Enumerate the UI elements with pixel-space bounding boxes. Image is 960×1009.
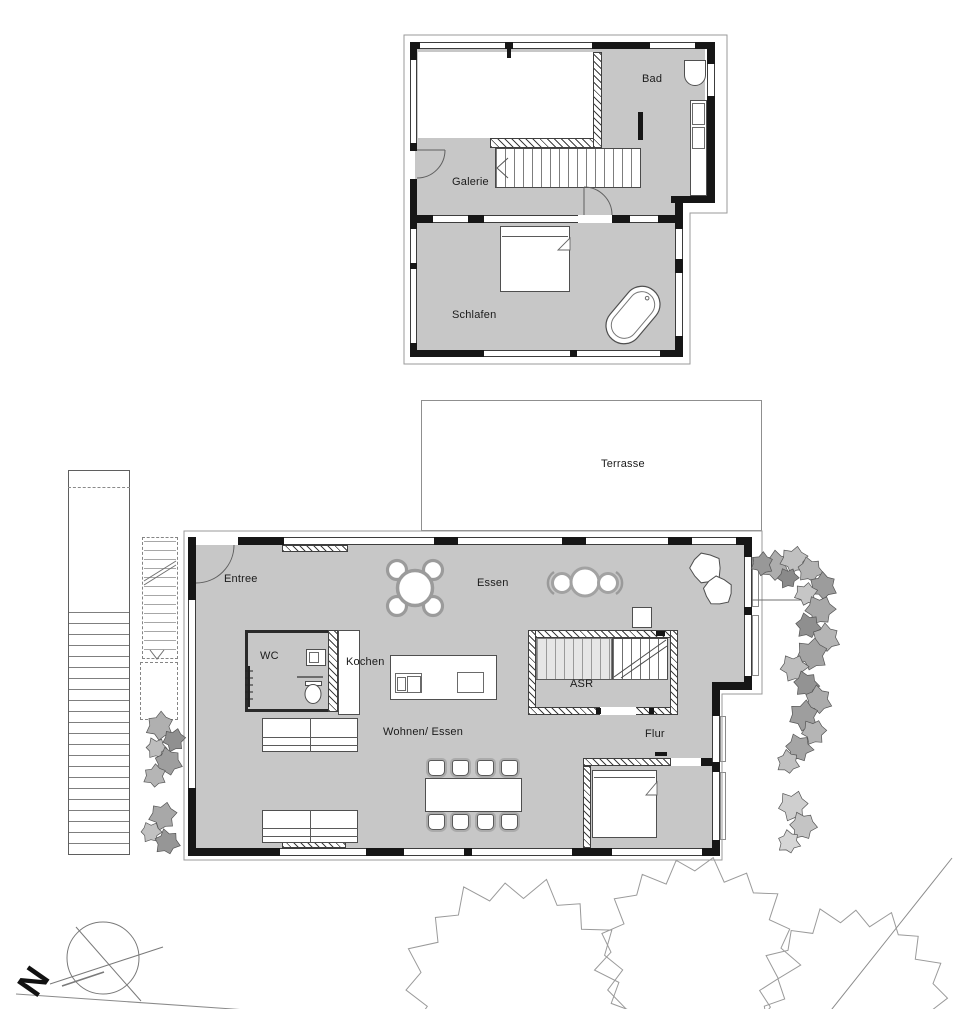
window xyxy=(484,215,578,223)
shrub xyxy=(761,550,789,580)
hatched-wall xyxy=(593,52,602,148)
shrub xyxy=(806,685,832,714)
wall-segment xyxy=(468,215,484,223)
wall-segment xyxy=(712,690,720,716)
wall-segment xyxy=(656,631,665,636)
wall-segment xyxy=(410,143,417,151)
room-label-flur: Flur xyxy=(645,728,665,740)
hatched-wall xyxy=(583,758,671,766)
window xyxy=(675,273,683,336)
wc-cistern xyxy=(305,681,322,686)
shrub xyxy=(795,583,818,606)
wall-segment xyxy=(658,215,675,223)
wall-segment xyxy=(701,758,712,766)
wall-segment xyxy=(562,537,586,545)
shrub xyxy=(790,700,818,731)
window xyxy=(404,848,464,856)
shrub xyxy=(786,734,814,761)
pillar xyxy=(632,607,652,628)
hatched-wall xyxy=(328,630,338,712)
wall-segment xyxy=(505,42,513,49)
partition-wall xyxy=(245,630,248,712)
terrasse-area xyxy=(421,400,762,531)
tree-canopy xyxy=(595,858,801,1009)
bed-ground xyxy=(592,770,657,838)
wall-segment xyxy=(612,215,630,223)
plan-element xyxy=(692,127,705,149)
window xyxy=(433,215,468,223)
shrub xyxy=(814,623,840,652)
wall-segment xyxy=(410,350,484,357)
wall-segment xyxy=(596,708,601,714)
shrub xyxy=(780,546,808,573)
window xyxy=(188,600,196,788)
window xyxy=(712,772,720,840)
tree-canopies xyxy=(406,858,948,1009)
detail-line xyxy=(310,810,311,843)
wall-segment xyxy=(675,259,683,273)
shrub xyxy=(810,572,836,600)
detail-line xyxy=(502,236,568,237)
window xyxy=(410,229,417,263)
window xyxy=(458,537,562,545)
window-sill xyxy=(752,557,759,607)
plan-element xyxy=(397,677,406,691)
room-label-entree: Entree xyxy=(224,573,258,585)
wall-segment xyxy=(188,848,280,856)
property-line xyxy=(828,858,952,1009)
north-compass: N xyxy=(9,922,247,1009)
detail-line xyxy=(594,777,655,778)
wall-segment xyxy=(188,537,196,600)
wall-segment xyxy=(464,848,472,856)
north-label: N xyxy=(9,959,57,1004)
partition-wall xyxy=(245,630,340,633)
room-label-bad: Bad xyxy=(642,73,662,85)
wall-segment xyxy=(744,537,752,557)
shrub xyxy=(779,791,809,821)
detail-line xyxy=(310,718,311,752)
window xyxy=(744,557,752,607)
wall-segment xyxy=(570,350,577,357)
room-label-wc: WC xyxy=(260,650,279,662)
window xyxy=(513,42,592,49)
shrub xyxy=(155,747,182,775)
shrub xyxy=(163,729,186,752)
plan-element xyxy=(69,612,129,854)
window xyxy=(707,64,715,96)
window xyxy=(630,215,658,223)
room-label-galerie: Galerie xyxy=(452,176,489,188)
room-label-asr: ASR xyxy=(570,678,593,690)
chair xyxy=(477,760,494,776)
stair-flight-under xyxy=(536,638,612,680)
wall-segment xyxy=(712,762,720,772)
hatched-wall xyxy=(490,138,602,148)
window xyxy=(410,269,417,343)
stair-upper xyxy=(495,148,641,188)
shrub xyxy=(802,721,827,745)
plan-element xyxy=(407,676,421,693)
wall-segment xyxy=(675,203,683,229)
window xyxy=(650,42,695,49)
wall-segment xyxy=(188,788,196,856)
window xyxy=(744,615,752,676)
wall-segment xyxy=(572,848,612,856)
floor-plan-drawing: Bad Galerie Schlafen Terrasse Entree Ess… xyxy=(0,0,960,1009)
wall-segment xyxy=(668,537,692,545)
wall-segment xyxy=(712,682,752,690)
shrub xyxy=(149,802,177,830)
tree-canopy xyxy=(406,879,628,1009)
window xyxy=(420,42,505,49)
hatched-wall xyxy=(282,545,348,552)
window xyxy=(472,848,572,856)
bedroom-door-opening xyxy=(671,758,701,766)
shrub xyxy=(790,812,818,838)
chair xyxy=(452,814,469,830)
dining-table xyxy=(425,778,522,812)
room-label-essen: Essen xyxy=(477,577,509,589)
shrub xyxy=(798,557,823,582)
wall-segment xyxy=(434,537,458,545)
shrub xyxy=(780,656,809,681)
wall-segment xyxy=(410,42,417,60)
window xyxy=(284,537,434,545)
wall-segment xyxy=(649,708,654,714)
chair xyxy=(477,814,494,830)
window xyxy=(712,716,720,762)
partition-wall xyxy=(245,709,338,712)
door-opening xyxy=(578,215,612,223)
chair xyxy=(501,760,518,776)
wall-segment xyxy=(707,42,715,64)
plan-element xyxy=(692,103,705,125)
window xyxy=(484,350,570,357)
window-sill xyxy=(720,716,726,762)
chair xyxy=(501,814,518,830)
wall-segment xyxy=(366,848,404,856)
wall-segment xyxy=(744,607,752,615)
wall-segment xyxy=(655,752,667,756)
window xyxy=(410,60,417,143)
shrub xyxy=(777,569,799,588)
wc-toilet-upper xyxy=(684,60,706,86)
wall-segment xyxy=(592,42,650,49)
window-sill xyxy=(720,772,726,840)
room-label-terrasse: Terrasse xyxy=(601,458,645,470)
window xyxy=(612,848,702,856)
stair-landing xyxy=(140,662,178,720)
window xyxy=(577,350,660,357)
shrub xyxy=(796,613,822,638)
window xyxy=(280,848,366,856)
wall-segment xyxy=(660,350,683,357)
hatched-wall xyxy=(528,630,536,715)
detail-line xyxy=(536,679,668,680)
wall-segment xyxy=(638,112,643,140)
room-label-schlafen: Schlafen xyxy=(452,309,496,321)
hatched-wall xyxy=(670,630,678,715)
chair xyxy=(428,760,445,776)
shrub xyxy=(155,829,180,854)
wall-segment xyxy=(671,196,715,203)
window xyxy=(692,537,736,545)
chair xyxy=(452,760,469,776)
wall-segment xyxy=(415,215,433,223)
kitchen-tall-cabinets xyxy=(338,630,360,715)
cooktop xyxy=(457,672,484,693)
shrub xyxy=(144,764,165,787)
wall-segment xyxy=(507,49,511,58)
shrub xyxy=(141,823,162,842)
shrub xyxy=(778,750,800,774)
window-sill xyxy=(752,615,759,676)
room-label-wohnen-essen: Wohnen/ Essen xyxy=(383,726,463,738)
window xyxy=(675,229,683,259)
stair-flight-up xyxy=(612,638,668,680)
wall-segment xyxy=(238,537,284,545)
chair xyxy=(428,814,445,830)
wall-segment xyxy=(702,848,720,856)
shrub xyxy=(146,738,167,758)
shrub xyxy=(794,671,820,695)
room-label-kochen: Kochen xyxy=(346,656,385,668)
tree-canopy xyxy=(756,909,948,1009)
plan-element xyxy=(309,652,319,663)
wall-segment xyxy=(707,96,715,203)
plan-element xyxy=(68,487,130,488)
shrub xyxy=(796,638,827,670)
plan-element xyxy=(144,541,176,655)
hatched-wall xyxy=(583,766,591,848)
shrub xyxy=(805,597,836,624)
open-void xyxy=(418,52,593,138)
shrub xyxy=(779,830,801,853)
asr-door-opening xyxy=(600,707,636,715)
window xyxy=(586,537,668,545)
